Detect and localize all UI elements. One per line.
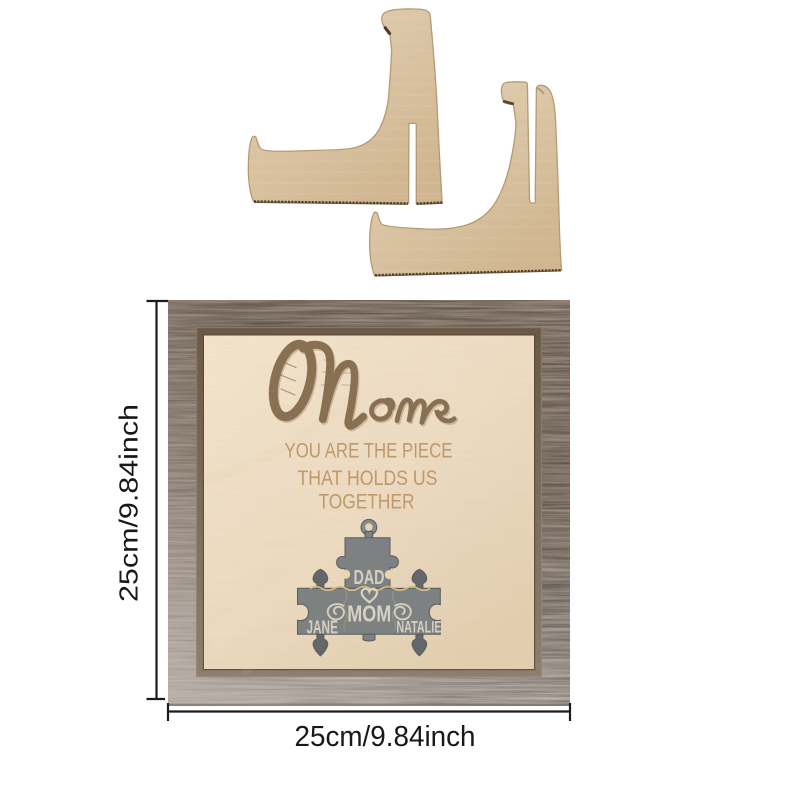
svg-text:TOGETHER: TOGETHER	[319, 491, 415, 514]
svg-text:DAD: DAD	[354, 567, 385, 589]
svg-text:YOU ARE THE PIECE: YOU ARE THE PIECE	[285, 440, 453, 463]
svg-text:25cm/9.84inch: 25cm/9.84inch	[295, 721, 476, 753]
svg-text:NATALIE: NATALIE	[396, 618, 441, 637]
svg-text:THAT HOLDS US: THAT HOLDS US	[298, 467, 438, 490]
svg-text:MOM: MOM	[347, 601, 391, 627]
svg-text:JANE: JANE	[306, 618, 338, 638]
svg-text:25cm/9.84inch: 25cm/9.84inch	[114, 404, 144, 602]
